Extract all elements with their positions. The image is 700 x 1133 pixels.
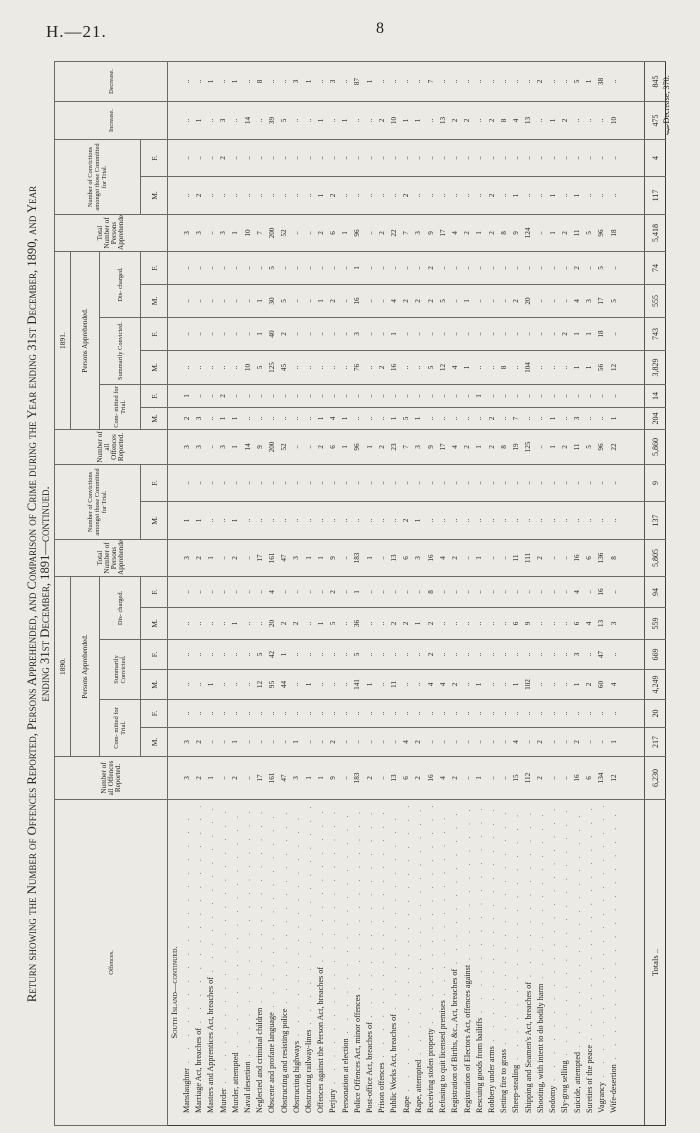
value-cell: 16: [388, 351, 400, 385]
value-cell: 1: [364, 670, 376, 700]
value-cell: 1: [315, 285, 327, 318]
value-cell: ..: [535, 285, 547, 318]
value-cell: 2: [193, 177, 205, 215]
value-cell: ..: [193, 318, 205, 351]
offence-name: Shipping and Seamen's Act, breaches of: [523, 982, 534, 1113]
crime-statistics-table: Offences. Number of all Offences Reporte…: [54, 61, 666, 1126]
value-cell: ..: [327, 700, 339, 728]
header-convictions-1890: Number of Convictions amongst those Comm…: [55, 465, 141, 540]
value-cell: 1: [388, 318, 400, 351]
value-cell: ..: [498, 700, 510, 728]
value-cell: 11: [572, 430, 584, 465]
value-cell: 137: [645, 502, 666, 540]
value-cell: 2: [535, 757, 547, 800]
offence-name: Registration of Electors Act, offences a…: [462, 965, 473, 1113]
value-cell: ..: [181, 465, 193, 502]
offence-label-cell: Shooting, with intent to do bodily harm.…: [535, 800, 547, 1126]
dot-leader: . . . . . . . . . . . . . . . . . . . . …: [524, 806, 535, 982]
value-cell: ..: [303, 408, 315, 430]
table-title-line2: ending 31st December, 1891—continued.: [39, 62, 52, 1126]
value-cell: [620, 252, 645, 285]
value-cell: ..: [462, 385, 474, 408]
value-cell: ..: [401, 62, 413, 102]
value-cell: ..: [437, 140, 449, 177]
value-cell: ..: [218, 640, 230, 670]
value-cell: ..: [193, 62, 205, 102]
value-cell: 4: [437, 757, 449, 800]
value-cell: 36: [352, 608, 364, 640]
value-cell: 5: [266, 252, 278, 285]
value-cell: 1: [315, 408, 327, 430]
value-cell: ..: [572, 102, 584, 140]
value-cell: [620, 318, 645, 351]
value-cell: 4: [572, 285, 584, 318]
value-cell: ..: [535, 640, 547, 670]
value-cell: 3,829: [645, 351, 666, 385]
value-cell: ..: [230, 140, 242, 177]
dot-leader: . . . . . . . . . . . . . . . . . . . . …: [402, 806, 413, 1096]
value-cell: 4: [510, 728, 522, 757]
value-cell: 30: [266, 285, 278, 318]
header-convictions-1891: Number of Convictions amongst those Comm…: [55, 140, 141, 215]
value-cell: ..: [559, 285, 571, 318]
value-cell: ..: [388, 62, 400, 102]
value-cell: [168, 62, 182, 102]
value-cell: ..: [559, 540, 571, 577]
value-cell: ..: [303, 102, 315, 140]
value-cell: ..: [486, 140, 498, 177]
value-cell: ..: [559, 700, 571, 728]
value-cell: ..: [376, 700, 388, 728]
value-cell: ..: [315, 140, 327, 177]
value-cell: ..: [437, 177, 449, 215]
value-cell: ..: [242, 140, 254, 177]
value-cell: ..: [523, 177, 535, 215]
offence-name: Perjury: [327, 1089, 338, 1113]
value-cell: ..: [340, 351, 352, 385]
value-cell: 5: [425, 351, 437, 385]
value-cell: ..: [498, 285, 510, 318]
value-cell: ..: [266, 385, 278, 408]
value-cell: 47: [279, 757, 291, 800]
value-cell: ..: [535, 577, 547, 608]
value-cell: ..: [340, 285, 352, 318]
value-cell: 2: [535, 540, 547, 577]
value-cell: 2: [364, 757, 376, 800]
value-cell: ..: [254, 140, 266, 177]
value-cell: 2: [230, 757, 242, 800]
value-cell: ..: [559, 577, 571, 608]
value-cell: ..: [327, 670, 339, 700]
value-cell: ..: [535, 385, 547, 408]
value-cell: ..: [608, 140, 620, 177]
value-cell: ..: [352, 502, 364, 540]
value-cell: 1: [205, 670, 217, 700]
value-cell: ..: [315, 385, 327, 408]
dot-leader: . . . . . . . . . . . . . . . . . . . . …: [560, 806, 571, 1060]
offence-name: Sly-grog selling: [559, 1060, 570, 1113]
table-row: Personation at election. . . . . . . . .…: [340, 62, 352, 1126]
value-cell: ..: [413, 351, 425, 385]
value-cell: ..: [462, 608, 474, 640]
value-cell: ..: [523, 502, 535, 540]
value-cell: 2: [559, 318, 571, 351]
value-cell: 20: [266, 608, 278, 640]
value-cell: [168, 351, 182, 385]
value-cell: ..: [535, 351, 547, 385]
value-cell: ..: [291, 670, 303, 700]
value-cell: 1: [572, 318, 584, 351]
value-cell: ..: [498, 757, 510, 800]
value-cell: 1: [340, 215, 352, 252]
table-row: Police Offences Act, minor offences. . .…: [352, 62, 364, 1126]
value-cell: ..: [340, 757, 352, 800]
value-cell: ..: [364, 252, 376, 285]
value-cell: ..: [315, 351, 327, 385]
value-cell: 14: [242, 430, 254, 465]
table-row: Obstructing and resisting police. . . . …: [279, 62, 291, 1126]
value-cell: ..: [279, 252, 291, 285]
table-row: Rape, attempted. . . . . . . . . . . . .…: [413, 62, 425, 1126]
value-cell: ..: [449, 577, 461, 608]
value-cell: [168, 140, 182, 177]
value-cell: ..: [327, 351, 339, 385]
value-cell: ..: [205, 502, 217, 540]
value-cell: ..: [413, 577, 425, 608]
value-cell: ..: [486, 62, 498, 102]
value-cell: ..: [254, 502, 266, 540]
offence-label-cell: Registration of Electors Act, offences a…: [462, 800, 474, 1126]
value-cell: [620, 577, 645, 608]
value-cell: 2: [193, 757, 205, 800]
value-cell: ..: [523, 318, 535, 351]
value-cell: ..: [193, 351, 205, 385]
value-cell: [168, 670, 182, 700]
value-cell: ..: [279, 62, 291, 102]
value-cell: ..: [230, 465, 242, 502]
value-cell: [168, 577, 182, 608]
value-cell: ..: [486, 540, 498, 577]
value-cell: 8: [498, 102, 510, 140]
offence-label-cell: Wife-desertion. . . . . . . . . . . . . …: [608, 800, 620, 1126]
value-cell: ..: [242, 465, 254, 502]
value-cell: ..: [401, 318, 413, 351]
offence-name: Shooting, with intent to do bodily harm: [535, 984, 546, 1113]
value-cell: ..: [242, 62, 254, 102]
table-row: Murder. . . . . . . . . . . . . . . . . …: [218, 62, 230, 1126]
value-cell: ..: [376, 408, 388, 430]
value-cell: ..: [449, 252, 461, 285]
value-cell: ..: [266, 408, 278, 430]
value-cell: 2: [425, 252, 437, 285]
value-cell: ..: [364, 502, 376, 540]
value-cell: ..: [230, 102, 242, 140]
value-cell: ..: [181, 252, 193, 285]
value-cell: 47: [279, 540, 291, 577]
value-cell: ..: [486, 608, 498, 640]
value-cell: 5: [352, 640, 364, 670]
header-committed-1891: Com- mitted for Trial.: [100, 385, 141, 430]
value-cell: 42: [266, 640, 278, 670]
value-cell: 1: [230, 608, 242, 640]
value-cell: 4: [437, 670, 449, 700]
offence-label-cell: Obscene and profane language. . . . . . …: [266, 800, 278, 1126]
value-cell: ..: [364, 102, 376, 140]
value-cell: ..: [205, 408, 217, 430]
value-cell: ..: [535, 408, 547, 430]
value-cell: [620, 728, 645, 757]
offence-name: Sheep-stealing: [510, 1065, 521, 1113]
value-cell: 1: [230, 408, 242, 430]
value-cell: 1: [340, 102, 352, 140]
value-cell: ..: [474, 408, 486, 430]
value-cell: 1: [474, 540, 486, 577]
value-cell: ..: [584, 502, 596, 540]
value-cell: 3: [572, 640, 584, 670]
value-cell: ..: [230, 177, 242, 215]
value-cell: 4: [266, 577, 278, 608]
table-row: Registration of Births, &c., Act, breach…: [449, 62, 461, 1126]
value-cell: ..: [401, 700, 413, 728]
value-cell: ..: [486, 285, 498, 318]
value-cell: ..: [474, 318, 486, 351]
value-cell: ..: [291, 385, 303, 408]
value-cell: 125: [266, 351, 278, 385]
value-cell: ..: [254, 608, 266, 640]
value-cell: ..: [181, 102, 193, 140]
offence-name: Receiving stolen property: [425, 1028, 436, 1113]
value-cell: ..: [474, 140, 486, 177]
value-cell: ..: [584, 252, 596, 285]
value-cell: ..: [242, 252, 254, 285]
value-cell: ..: [242, 318, 254, 351]
header-decrease: Decrease.: [55, 62, 168, 102]
value-cell: ..: [364, 640, 376, 670]
table-row: Registration of Electors Act, offences a…: [462, 62, 474, 1126]
value-cell: ..: [218, 351, 230, 385]
value-cell: ..: [230, 640, 242, 670]
value-cell: ..: [486, 465, 498, 502]
value-cell: 1: [413, 502, 425, 540]
value-cell: [168, 608, 182, 640]
value-cell: ..: [449, 465, 461, 502]
value-cell: ..: [498, 577, 510, 608]
dot-leader: . . . . . . . . . . . . . . . . . . . . …: [194, 806, 205, 1028]
value-cell: ..: [352, 700, 364, 728]
dot-leader: . . . . . . . . . . . . . . . . . . . . …: [292, 806, 303, 1041]
value-cell: ..: [218, 285, 230, 318]
value-cell: 16: [572, 540, 584, 577]
value-cell: ..: [205, 608, 217, 640]
value-cell: 2: [486, 408, 498, 430]
dot-leader: . . . . . . . . . . . . . . . . . . . . …: [182, 806, 193, 1068]
value-cell: 6: [510, 608, 522, 640]
value-cell: ..: [523, 577, 535, 608]
value-cell: 6: [584, 540, 596, 577]
value-cell: 2: [218, 385, 230, 408]
value-cell: 20: [645, 700, 666, 728]
value-cell: 1: [547, 102, 559, 140]
value-cell: 2: [315, 215, 327, 252]
header-reported-1890: Number of all Offences Reported.: [55, 757, 168, 800]
value-cell: 2: [486, 215, 498, 252]
value-cell: ..: [462, 62, 474, 102]
value-cell: 1: [572, 670, 584, 700]
value-cell: ..: [596, 408, 608, 430]
value-cell: 39: [266, 102, 278, 140]
value-cell: ..: [559, 177, 571, 215]
value-cell: ..: [608, 385, 620, 408]
value-cell: ..: [437, 577, 449, 608]
value-cell: 9: [254, 430, 266, 465]
value-cell: 1: [547, 215, 559, 252]
value-cell: [620, 102, 645, 140]
value-cell: ..: [364, 385, 376, 408]
value-cell: [620, 408, 645, 430]
decrease-footnote: } Decrease, 370.: [662, 56, 676, 151]
header-f-label: F.: [141, 465, 168, 502]
offence-label-cell: Murder, attempted. . . . . . . . . . . .…: [230, 800, 242, 1126]
value-cell: ..: [364, 577, 376, 608]
value-cell: ..: [327, 140, 339, 177]
dot-leader: . . . . . . . . . . . . . . . . . . . . …: [487, 806, 498, 1046]
offence-label-cell: Rescuing goods from bailiffs. . . . . . …: [474, 800, 486, 1126]
value-cell: 96: [596, 430, 608, 465]
header-reported-1891: Number of all Offences Reported.: [55, 430, 168, 465]
value-cell: 2: [376, 351, 388, 385]
header-summarily-1890: Summarily Convicted.: [100, 640, 141, 700]
value-cell: 1: [547, 430, 559, 465]
value-cell: ..: [205, 700, 217, 728]
value-cell: 9: [523, 608, 535, 640]
value-cell: [620, 62, 645, 102]
value-cell: 16: [425, 757, 437, 800]
value-cell: ..: [474, 465, 486, 502]
header-f-label: F.: [141, 385, 168, 408]
offence-label-cell: Rape. . . . . . . . . . . . . . . . . . …: [401, 800, 413, 1126]
dot-leader: . . . . . . . . . . . . . . . . . . . . …: [304, 806, 315, 1030]
value-cell: 1: [315, 540, 327, 577]
value-cell: 9: [327, 540, 339, 577]
value-cell: ..: [498, 385, 510, 408]
value-cell: ..: [303, 385, 315, 408]
value-cell: ..: [291, 577, 303, 608]
header-increase: Increase.: [55, 102, 168, 140]
value-cell: ..: [327, 252, 339, 285]
value-cell: 9: [327, 757, 339, 800]
value-cell: ..: [218, 177, 230, 215]
value-cell: ..: [230, 252, 242, 285]
value-cell: ..: [266, 728, 278, 757]
value-cell: ..: [291, 177, 303, 215]
value-cell: ..: [510, 502, 522, 540]
value-cell: ..: [340, 465, 352, 502]
value-cell: 60: [596, 670, 608, 700]
value-cell: 18: [608, 215, 620, 252]
offence-name: Registration of Births, &c., Act, breach…: [449, 969, 460, 1113]
value-cell: ..: [535, 700, 547, 728]
value-cell: ..: [205, 177, 217, 215]
value-cell: ..: [193, 285, 205, 318]
value-cell: 1: [510, 177, 522, 215]
value-cell: ..: [303, 351, 315, 385]
value-cell: ..: [315, 62, 327, 102]
value-cell: 8: [425, 577, 437, 608]
value-cell: ..: [413, 640, 425, 670]
value-cell: 200: [266, 430, 278, 465]
offence-label-cell: Refusing to quit licensed premises. . . …: [437, 800, 449, 1126]
value-cell: 96: [596, 215, 608, 252]
value-cell: ..: [584, 140, 596, 177]
value-cell: [620, 465, 645, 502]
value-cell: 1: [474, 385, 486, 408]
offence-label-cell: Marriage Act, breaches of. . . . . . . .…: [193, 800, 205, 1126]
value-cell: 111: [523, 540, 535, 577]
value-cell: 1: [401, 102, 413, 140]
value-cell: ..: [254, 385, 266, 408]
value-cell: ..: [547, 577, 559, 608]
value-cell: 2: [535, 62, 547, 102]
offence-name: Manslaughter: [181, 1068, 192, 1113]
dot-leader: . . . . . . . . . . . . . . . . . . . . …: [280, 806, 291, 1009]
value-cell: ..: [510, 577, 522, 608]
value-cell: ..: [437, 318, 449, 351]
value-cell: ..: [364, 608, 376, 640]
offence-label-cell: Post-office Act, breaches of. . . . . . …: [364, 800, 376, 1126]
value-cell: ..: [205, 640, 217, 670]
dot-leader: . . . . . . . . . . . . . . . . . . . . …: [255, 806, 266, 1008]
value-cell: ..: [498, 318, 510, 351]
value-cell: ..: [352, 385, 364, 408]
value-cell: ..: [535, 502, 547, 540]
value-cell: ..: [474, 351, 486, 385]
value-cell: ..: [535, 430, 547, 465]
offence-label-cell: Naval desertion. . . . . . . . . . . . .…: [242, 800, 254, 1126]
value-cell: ..: [340, 318, 352, 351]
value-cell: ..: [364, 700, 376, 728]
value-cell: ..: [291, 502, 303, 540]
value-cell: 2: [279, 608, 291, 640]
value-cell: ..: [242, 640, 254, 670]
value-cell: [620, 430, 645, 465]
value-cell: 2: [559, 430, 571, 465]
table-row: Naval desertion. . . . . . . . . . . . .…: [242, 62, 254, 1126]
value-cell: 2: [376, 102, 388, 140]
value-cell: ..: [242, 670, 254, 700]
value-cell: ..: [193, 640, 205, 670]
value-cell: ..: [340, 540, 352, 577]
section-heading-row: South Island—continued.: [168, 62, 182, 1126]
value-cell: ..: [254, 408, 266, 430]
value-cell: 2: [462, 102, 474, 140]
value-cell: ..: [596, 502, 608, 540]
value-cell: ..: [523, 640, 535, 670]
value-cell: 6: [327, 215, 339, 252]
value-cell: ..: [547, 757, 559, 800]
value-cell: ..: [437, 502, 449, 540]
value-cell: 17: [437, 430, 449, 465]
value-cell: ..: [193, 252, 205, 285]
value-cell: ..: [303, 318, 315, 351]
offence-label-cell: Sheep-stealing. . . . . . . . . . . . . …: [510, 800, 522, 1126]
value-cell: ..: [535, 215, 547, 252]
value-cell: 94: [645, 577, 666, 608]
value-cell: [168, 540, 182, 577]
value-cell: ..: [584, 177, 596, 215]
value-cell: 19: [510, 430, 522, 465]
value-cell: ..: [205, 465, 217, 502]
offence-name: Suicide, attempted: [572, 1052, 583, 1113]
